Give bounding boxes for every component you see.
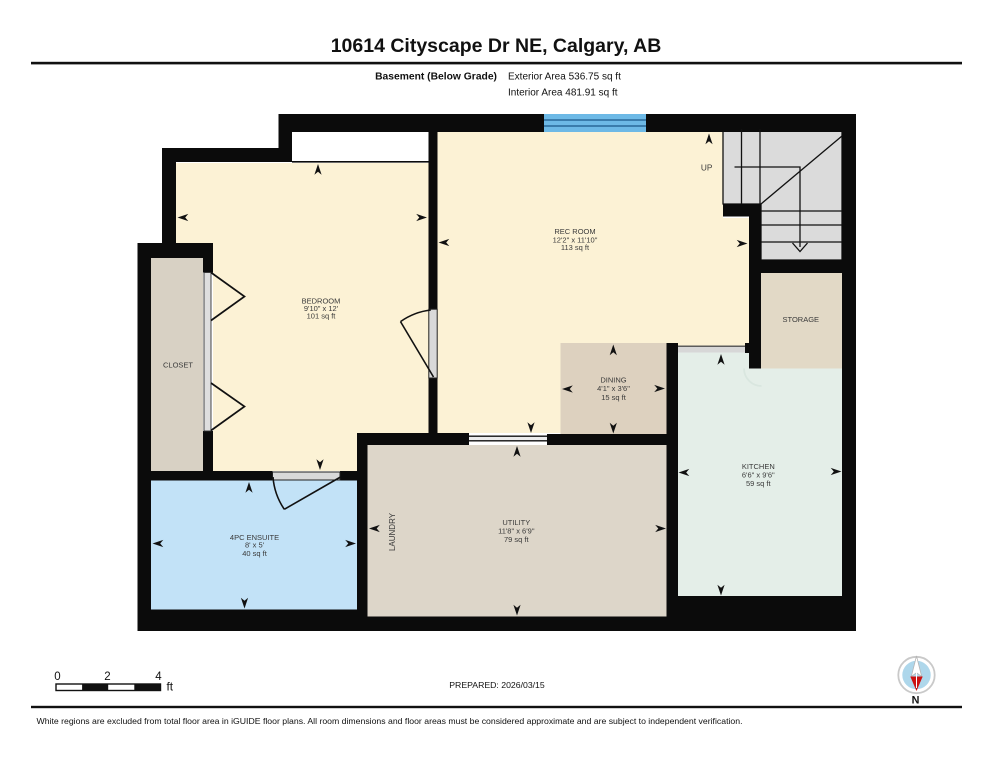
- svg-text:Basement (Below Grade): Basement (Below Grade): [375, 72, 497, 83]
- svg-text:Interior Area 481.91 sq ft: Interior Area 481.91 sq ft: [508, 88, 618, 99]
- svg-text:DINING: DINING: [600, 376, 626, 385]
- svg-text:STORAGE: STORAGE: [783, 315, 820, 324]
- svg-text:N: N: [912, 695, 920, 707]
- svg-text:59 sq ft: 59 sq ft: [746, 479, 772, 488]
- svg-text:101 sq ft: 101 sq ft: [307, 312, 337, 321]
- svg-text:4: 4: [155, 671, 162, 683]
- svg-text:79 sq ft: 79 sq ft: [504, 535, 530, 544]
- svg-text:2: 2: [104, 671, 110, 683]
- svg-text:UP: UP: [701, 163, 713, 173]
- svg-text:ft: ft: [167, 680, 174, 694]
- svg-text:40 sq ft: 40 sq ft: [242, 549, 268, 558]
- svg-text:White regions are excluded fro: White regions are excluded from total fl…: [37, 716, 743, 726]
- svg-text:PREPARED: 2026/03/15: PREPARED: 2026/03/15: [449, 680, 545, 690]
- svg-text:0: 0: [54, 671, 60, 683]
- svg-text:10614 Cityscape Dr NE, Calgary: 10614 Cityscape Dr NE, Calgary, AB: [331, 35, 662, 57]
- svg-text:LAUNDRY: LAUNDRY: [388, 512, 397, 551]
- svg-text:113 sq ft: 113 sq ft: [561, 243, 590, 252]
- svg-text:15 sq ft: 15 sq ft: [601, 393, 627, 402]
- svg-text:CLOSET: CLOSET: [163, 361, 193, 370]
- svg-text:Exterior Area 536.75 sq ft: Exterior Area 536.75 sq ft: [508, 72, 621, 83]
